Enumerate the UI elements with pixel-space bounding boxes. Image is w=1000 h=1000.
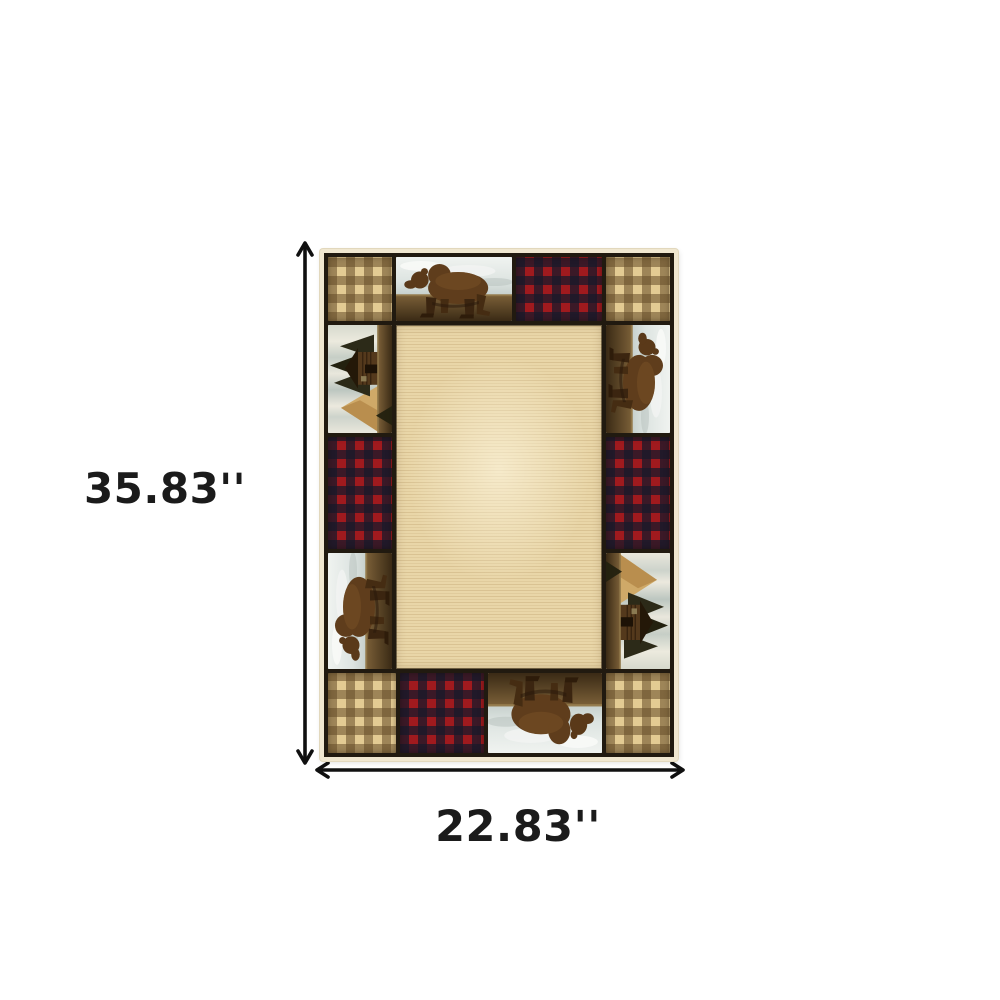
- rug-patch-gingham-bottom-right: [606, 673, 670, 753]
- walking-bear-illustration: [488, 673, 602, 753]
- rug-patch-buffalo-plaid-top: [516, 257, 602, 321]
- rug-patch-buffalo-plaid-right: [606, 437, 670, 549]
- rug-patch-buffalo-plaid-bottom: [400, 673, 484, 753]
- rug-patch-buffalo-plaid-left: [328, 437, 392, 549]
- rug-center-field: [396, 325, 602, 669]
- height-dimension-label: 35.83'': [55, 461, 275, 517]
- vertical-dimension-arrow: [294, 240, 316, 766]
- product-dimension-image: 35.83'' 22.83'': [0, 0, 1000, 1000]
- rug-patch-gingham-bottom-left: [328, 673, 396, 753]
- walking-bear-illustration: [396, 257, 512, 321]
- rug-image: [320, 249, 678, 761]
- rug-border-grid: [324, 253, 674, 757]
- horizontal-dimension-arrow: [312, 759, 692, 781]
- rug-patch-bear-scene-right: [606, 325, 670, 433]
- rug-patch-gingham-top-right: [606, 257, 670, 321]
- walking-bear-illustration: [606, 325, 670, 433]
- width-dimension-label: 22.83'': [403, 799, 633, 855]
- rug-patch-bear-scene-top: [396, 257, 512, 321]
- rug-patch-cabin-scene-left: [328, 325, 392, 433]
- rug-patch-cabin-scene-right: [606, 553, 670, 669]
- log-cabin-illustration: [328, 325, 392, 433]
- rug-patch-bear-scene-left: [328, 553, 392, 669]
- log-cabin-illustration: [606, 553, 670, 669]
- rug-patch-gingham-top-left: [328, 257, 392, 321]
- rug-patch-bear-scene-bottom: [488, 673, 602, 753]
- walking-bear-illustration: [328, 553, 392, 669]
